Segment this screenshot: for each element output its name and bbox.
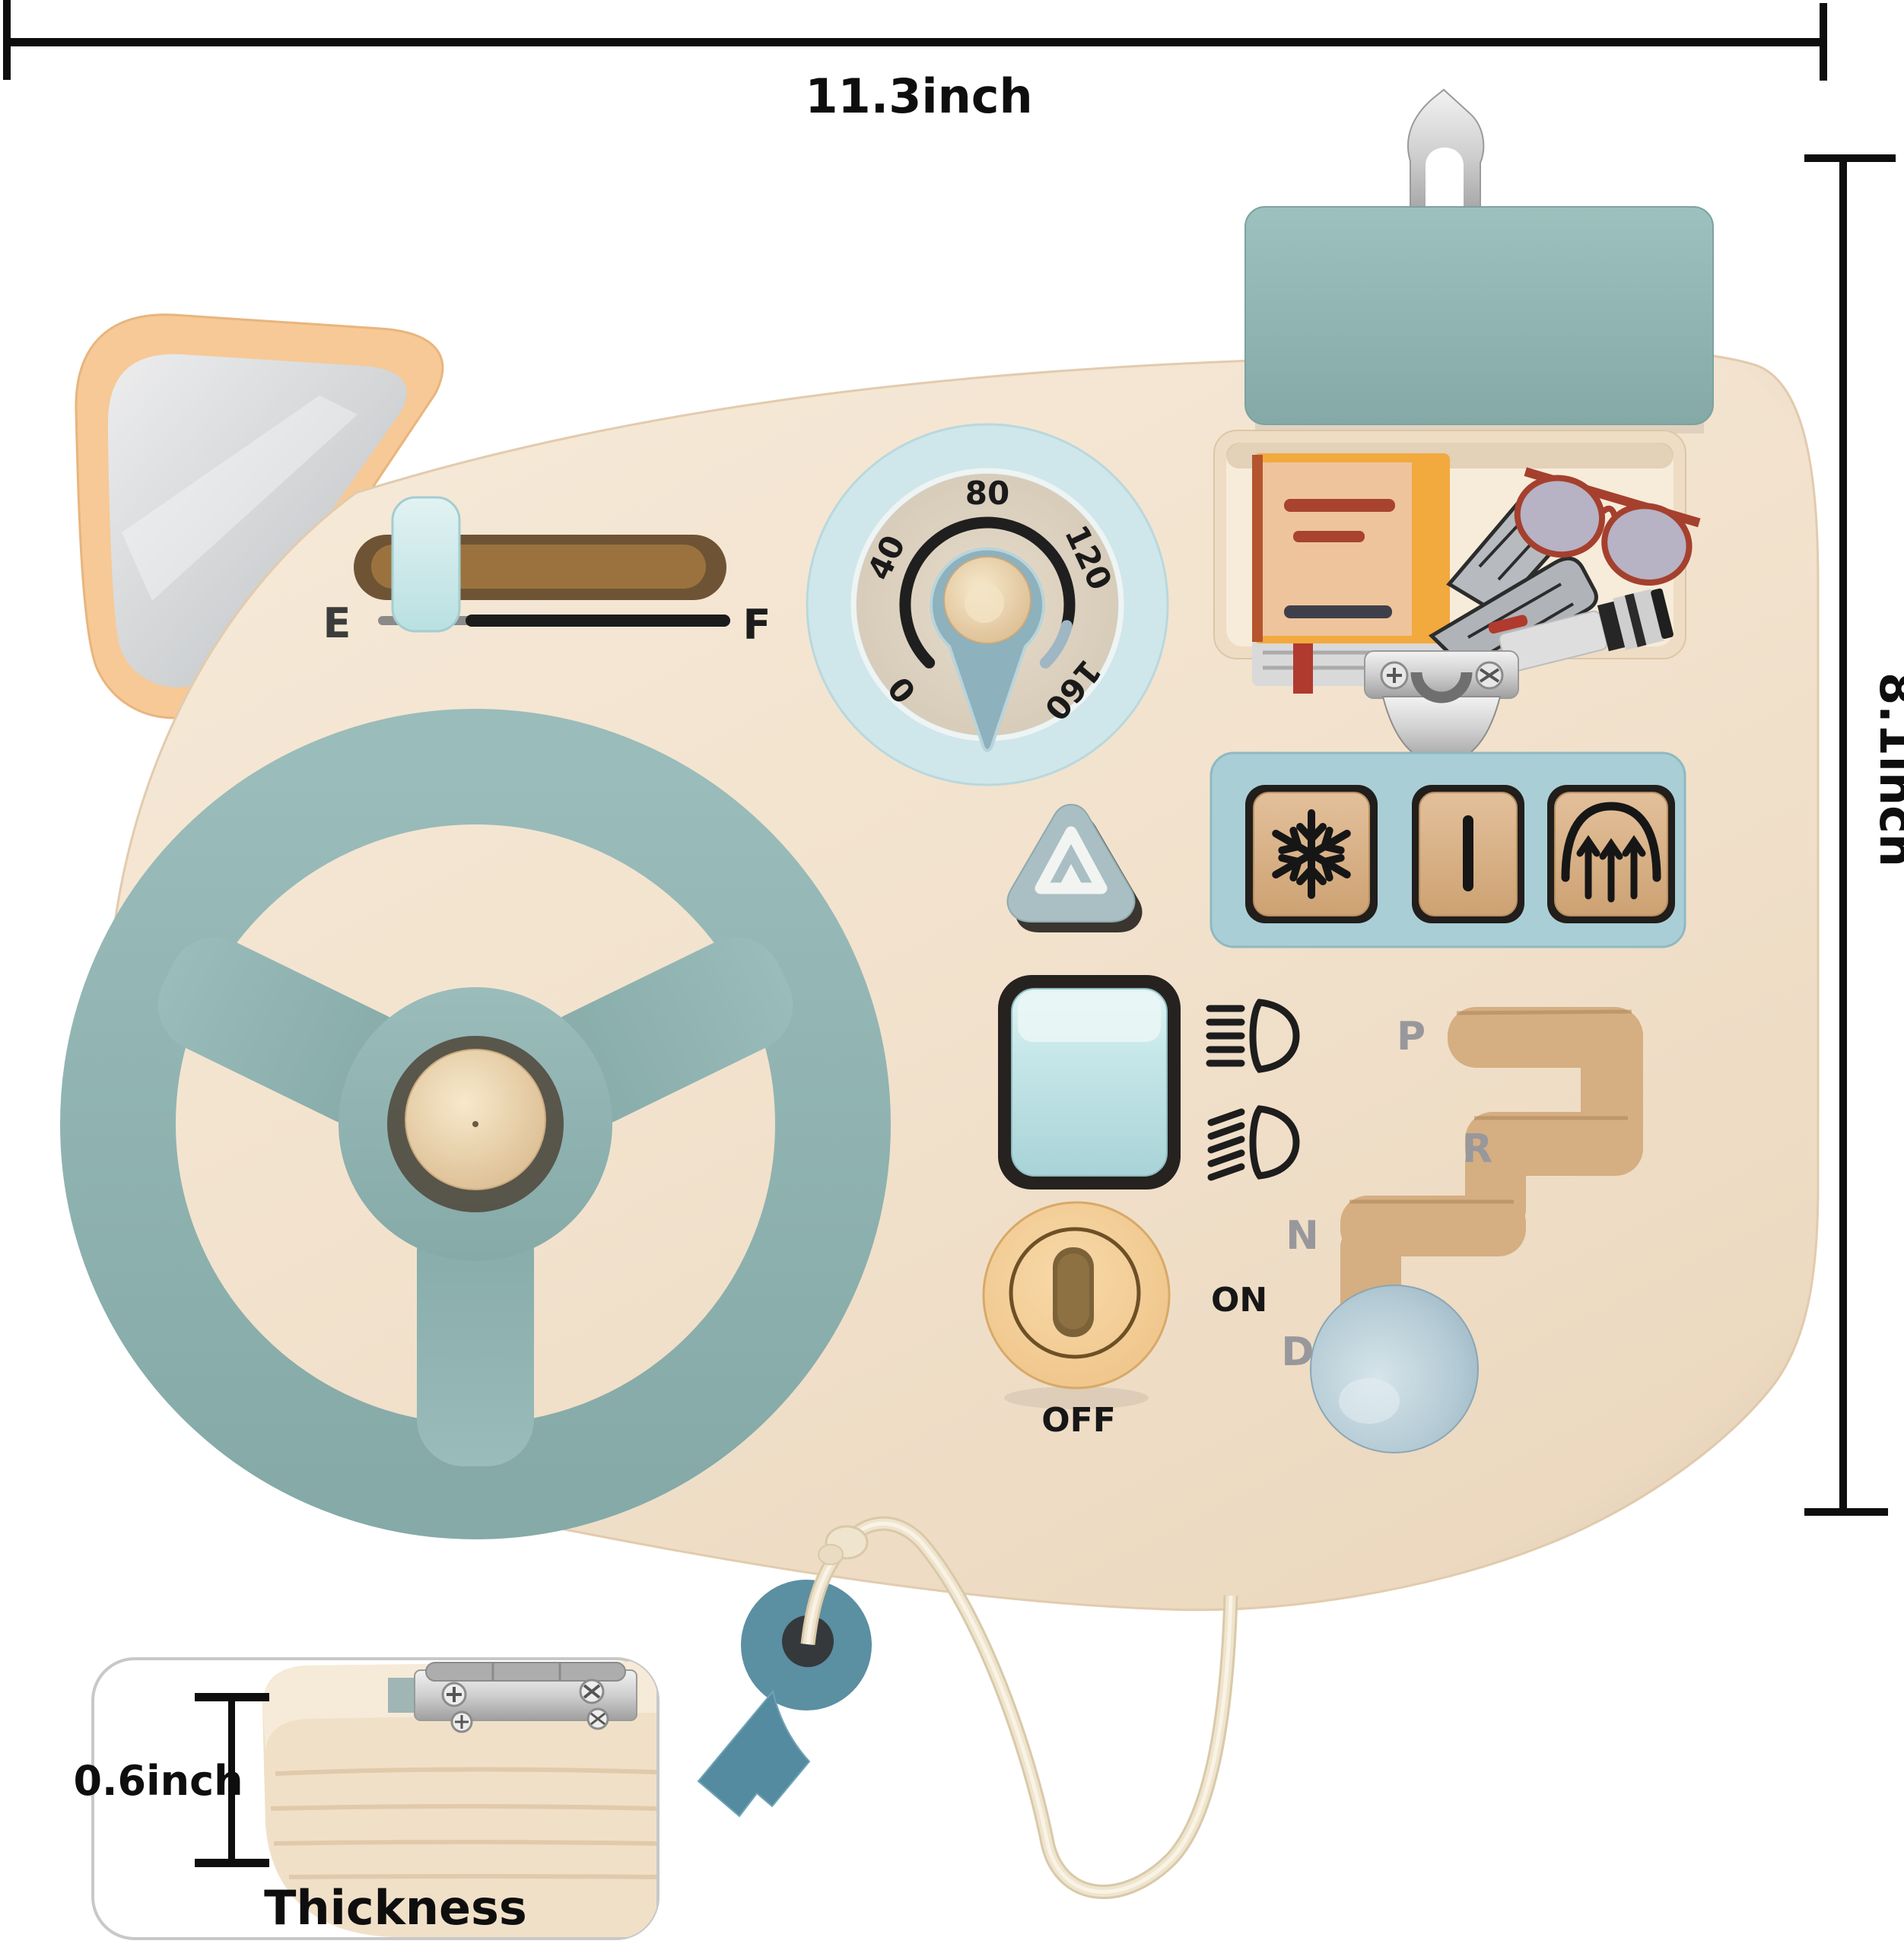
width-dim-line [3, 38, 1827, 46]
fuel-slider-knob [393, 497, 459, 631]
ignition-off-label: OFF [1041, 1401, 1116, 1440]
ignition-on-label: ON [1211, 1281, 1267, 1320]
fuel-empty-label: E [323, 599, 351, 647]
gear-position-p: P [1397, 1014, 1426, 1059]
thickness-inset: 0.6inch Thickness [73, 1659, 658, 1939]
width-dimension-label: 11.3inch [805, 68, 1032, 124]
height-dimension: 8.1inch [1804, 154, 1904, 1516]
button-panel [1211, 753, 1685, 947]
gear-position-n: N [1286, 1213, 1319, 1259]
product-photo-busy-board: 11.3inch 8.1inch [0, 0, 1904, 1947]
gear-position-d: D [1281, 1329, 1314, 1375]
fuel-full-label: F [743, 601, 771, 649]
bookmark [1293, 639, 1313, 694]
height-dim-bottom-cap [1804, 1508, 1888, 1516]
book-spine [1252, 455, 1263, 642]
gear-knob-ball [1311, 1285, 1478, 1453]
bar-icon [1463, 815, 1473, 891]
height-dim-top-cap [1804, 154, 1896, 162]
glove-box-lid [1245, 207, 1713, 424]
wheel-horn-knob [405, 1050, 545, 1189]
key-shaft [698, 1691, 809, 1816]
width-dimension: 11.3inch [3, 0, 1827, 124]
thickness-bottom-tick [195, 1859, 269, 1867]
busy-board-scene: 11.3inch 8.1inch [0, 0, 1904, 1947]
fuel-line [466, 615, 730, 627]
speedo-tick-80: 80 [965, 475, 1009, 512]
gear-position-r: R [1462, 1126, 1492, 1172]
width-dim-right-tick [1820, 3, 1827, 81]
thickness-value-label: 0.6inch [73, 1757, 243, 1805]
height-dim-line [1839, 154, 1847, 1514]
speedometer: 0 40 80 120 160 [807, 424, 1168, 785]
height-dimension-label: 8.1inch [1869, 672, 1904, 867]
thickness-caption: Thickness [264, 1880, 527, 1936]
